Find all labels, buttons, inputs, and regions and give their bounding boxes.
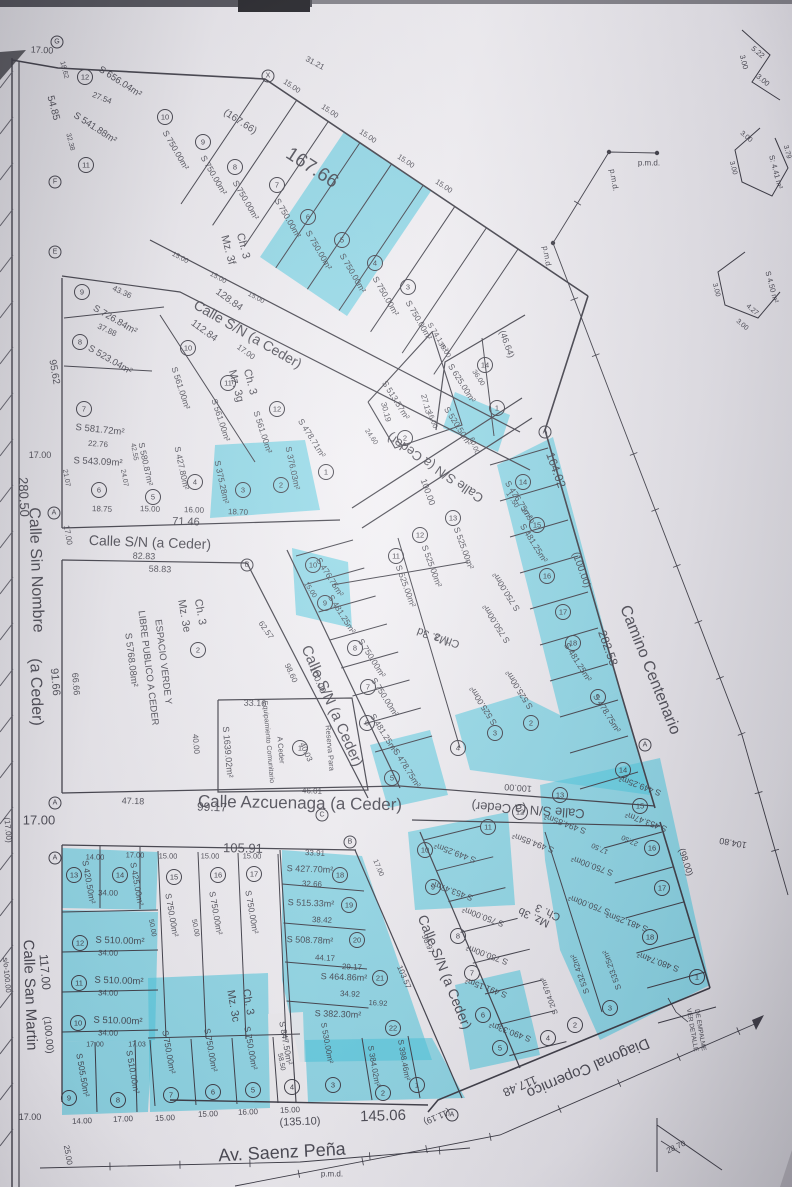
lot-number: 14 — [519, 478, 527, 487]
dim: 17.00 — [30, 44, 53, 55]
dim: 24.07 — [119, 469, 129, 488]
lot-area: S 508.78m² — [287, 934, 334, 946]
scanned-cadastral-plan: 1211109876543981011127654321214113121110… — [0, 0, 792, 1187]
dim: 14.00 — [86, 852, 105, 861]
lot-number: 7 — [275, 181, 279, 190]
street-name: Calle S/N (a Ceder) — [415, 912, 476, 1031]
dim: 18.70 — [228, 507, 249, 517]
dim: 14.00 — [72, 1116, 93, 1126]
lot-number: 5 — [390, 774, 394, 783]
lot-number: 15 — [170, 873, 178, 882]
survey-tick — [574, 201, 581, 205]
vertex-letter: G — [54, 39, 59, 46]
lot-area: S 523.04m² — [86, 343, 134, 377]
dim: 58.83 — [149, 564, 172, 575]
lot-area: S 510.00m² — [94, 975, 143, 988]
survey-tick — [369, 1152, 370, 1160]
lot-area: S 580.87m² — [137, 441, 156, 486]
dim: 34.00 — [98, 1028, 119, 1037]
detail-area: S: 4.41 m² — [767, 154, 785, 190]
margin-hatching — [0, 899, 13, 916]
reserve-area: S 1639.02m² — [221, 726, 235, 778]
lot-number: 5 — [151, 493, 155, 502]
lot-number: 3 — [331, 1081, 335, 1090]
lot-number: 12 — [76, 939, 84, 948]
vertex-letter: E — [53, 249, 58, 256]
dim: 17.00 — [23, 813, 56, 828]
lot-number: 10 — [74, 1019, 82, 1028]
dim: 104.80 — [719, 836, 748, 851]
mz3d-west-dividers — [296, 540, 353, 556]
dim: 32.38 — [64, 133, 75, 152]
dim: 15.00 — [247, 291, 266, 305]
margin-hatching — [0, 117, 13, 134]
cadastral-plan-svg: 1211109876543981011127654321214113121110… — [0, 0, 792, 1187]
lot-number: 5 — [251, 1086, 255, 1095]
lot-number: 18 — [336, 871, 344, 880]
lot-number: 4 — [373, 259, 377, 268]
dim: 15.00 — [396, 152, 417, 170]
lot-area: S 750.00m² — [231, 178, 262, 221]
detail-dim: 5.22 — [750, 44, 767, 60]
dim: 34.92 — [340, 989, 361, 999]
lot-number: 5 — [498, 1044, 502, 1053]
lot-number: 5 — [340, 236, 344, 245]
dim: 47.18 — [122, 796, 145, 807]
lot-number: 20 — [353, 936, 361, 945]
lot-area: S 750.00m² — [199, 153, 230, 196]
dim: (17.00) — [2, 817, 13, 843]
detail-dim: 3.00 — [738, 54, 750, 70]
lot-area: S 464.86m² — [321, 971, 368, 983]
dim: 15.00 — [434, 177, 455, 195]
lot-number: 16 — [648, 844, 656, 853]
vertex-letter: F — [53, 179, 57, 186]
block-label: Mz. 3d — [415, 625, 450, 648]
green-space-area: S 5768.08m² — [122, 632, 140, 687]
dim: 15.00 — [201, 851, 220, 860]
dim: 17.00 — [126, 850, 145, 859]
vertex-letter: A — [543, 429, 548, 436]
lot-number: 19 — [345, 901, 353, 910]
dim: (135.10) — [279, 1115, 320, 1128]
dim: 16.00 — [238, 1107, 259, 1117]
lot-area: S 382.30m² — [315, 1008, 362, 1020]
margin-hatching — [0, 1129, 13, 1146]
street-name: Calle Azcuenaga (a Ceder) — [198, 792, 402, 815]
photo-top-blob — [238, 0, 310, 12]
block-label: Mz. 3e — [175, 599, 193, 634]
lot-number: 3 — [608, 1004, 612, 1013]
survey-tick — [439, 1147, 440, 1155]
dim: 33.16 — [244, 698, 267, 709]
lot-number: 12 — [416, 531, 424, 540]
reserve-label: Equipamiento Comunitario — [261, 701, 275, 784]
lot-number: 2 — [573, 1021, 577, 1030]
dim: 15.00 — [243, 851, 262, 860]
lot-area: S 427.70m² — [287, 863, 334, 875]
lot-number: 8 — [78, 338, 82, 347]
lot-number: 17 — [559, 608, 567, 617]
dim: 16.00 — [184, 505, 205, 515]
lot-area: S 750.00m² — [371, 274, 402, 317]
street-name: Calle Sin Nombre — [25, 507, 46, 633]
lot-number: 7 — [366, 683, 370, 692]
margin-hatching — [0, 1083, 13, 1100]
dim: 98.60 — [283, 662, 300, 684]
lot-number: 1 — [415, 1081, 419, 1090]
dim: 15.00 — [159, 851, 178, 860]
street-name: Av. Saenz Peña — [218, 1139, 347, 1166]
street-name: (a Ceder) — [26, 658, 45, 726]
lot-area: S 510.00m² — [93, 1015, 142, 1028]
lot-number: 14 — [481, 361, 489, 370]
pmd-dot — [655, 151, 659, 155]
dim: 82.83 — [133, 551, 156, 562]
lot-number: 2 — [279, 481, 283, 490]
dim: 33.91 — [305, 848, 326, 858]
dim: s/o-100.00 — [1, 957, 13, 993]
lot-number: 2 — [196, 646, 200, 655]
pmd-dot — [607, 150, 611, 154]
margin-hatching — [0, 761, 13, 778]
dim: (46.64) — [497, 329, 516, 359]
dim: 17.00 — [371, 859, 384, 878]
detail-dim: 3.00 — [711, 283, 721, 298]
lot-number: 11 — [82, 161, 90, 170]
dim: 24.60 — [363, 428, 379, 446]
lot-number: 17 — [250, 870, 258, 879]
margin-hatching — [0, 163, 13, 180]
lot-number: 14 — [116, 871, 124, 880]
margin-hatching — [0, 531, 13, 548]
lot-area: S 561.00m² — [169, 366, 192, 411]
dim: 15.00 — [140, 504, 161, 514]
lot-area: S 750.00m² — [369, 676, 401, 719]
vertex-letter: A — [53, 800, 58, 807]
photo-corner-br — [780, 1150, 792, 1187]
dim: 34.00 — [98, 948, 119, 957]
lot-number: 22 — [389, 1024, 397, 1033]
dim: 18.75 — [92, 504, 113, 514]
dim: 71.46 — [172, 516, 200, 529]
dim: 15.00 — [280, 1105, 301, 1115]
dim: (100.00) — [41, 1016, 55, 1054]
lot-number: 7 — [82, 405, 86, 414]
dim: 100.00 — [504, 782, 532, 794]
vertex-letter: A — [52, 510, 57, 517]
lot-number: 9 — [323, 599, 327, 608]
lot-area: S 750.00m² — [460, 905, 505, 929]
dim: 17.03 — [128, 1042, 146, 1049]
margin-hatching — [0, 347, 13, 364]
lot-number: 14 — [619, 766, 627, 775]
street540-north — [62, 520, 340, 528]
lot-number: 13 — [70, 871, 78, 880]
lot-number: 15 — [636, 802, 644, 811]
dim: 66.66 — [70, 672, 82, 695]
lot-number: 3 — [493, 729, 497, 738]
dim: 91.66 — [48, 668, 62, 696]
lot-number: 13 — [449, 514, 457, 523]
lot-number: 6 — [211, 1088, 215, 1097]
vertex-letter: X — [266, 73, 271, 80]
block-label: Ch. 3 — [192, 598, 208, 626]
lot-number: 8 — [116, 1096, 120, 1105]
dim: 15.00 — [171, 251, 190, 265]
lot-area: S 204.97m² — [538, 976, 560, 1016]
dim: 29.17 — [342, 962, 363, 972]
pmd-dot — [551, 241, 555, 245]
dim: 145.06 — [360, 1107, 406, 1126]
lot-number: 12 — [81, 73, 89, 82]
vertex-letter: A — [643, 742, 648, 749]
lot-area: S 510.00m² — [95, 935, 144, 948]
lot-number: 9 — [201, 138, 205, 147]
lot-area: S 750.00m² — [207, 890, 225, 935]
dim: 17.00 — [29, 450, 52, 460]
dim: 27.54 — [91, 90, 113, 106]
lot-number: 11 — [392, 552, 400, 561]
lot-number: 11 — [484, 823, 492, 832]
margin-hatching — [0, 485, 13, 502]
dim: 99.17 — [197, 799, 228, 814]
pmd-label: p.m.d. — [638, 159, 660, 168]
vertex-letter: B — [348, 839, 353, 846]
margin-hatching — [0, 439, 13, 456]
vertex-letter: A — [53, 855, 58, 862]
margin-hatching — [0, 301, 13, 318]
lot-number: 6 — [97, 486, 101, 495]
lot-area: S 750.00m² — [404, 298, 435, 341]
dim: 31.21 — [304, 54, 326, 72]
lot-area: S 427.80m² — [173, 445, 192, 490]
dim: 16.00 — [426, 411, 439, 430]
dim: 34.00 — [98, 988, 119, 997]
dim: 34.00 — [98, 888, 119, 897]
lot-number: 16 — [214, 871, 222, 880]
lot-area: S 750.00m² — [161, 128, 192, 171]
lot-number: 1 — [695, 973, 699, 982]
lot-number: 3 — [406, 283, 410, 292]
dim: 280.50 — [16, 477, 32, 517]
dim: (11.19) — [422, 1107, 452, 1127]
lot-area: S 543.09m² — [73, 455, 123, 469]
dim: 18.62 — [58, 61, 69, 80]
dim: 62.57 — [257, 619, 276, 641]
lot-number: 4 — [290, 1083, 294, 1092]
lot-number: 3 — [241, 486, 245, 495]
lot-area: S 750.00m² — [163, 892, 181, 937]
lot-area: S 750.00m² — [243, 889, 261, 934]
margin-hatching — [0, 669, 13, 686]
copernico-arrowhead — [752, 1015, 764, 1030]
lot-number: 21 — [376, 974, 384, 983]
lot-area: S 750.00m² — [490, 571, 522, 614]
dim: 22.76 — [88, 439, 109, 449]
dim: 25.00 — [62, 1144, 74, 1166]
lot-number: 12 — [273, 405, 281, 414]
photo-top-edge-right — [312, 0, 792, 4]
lot-number: 10 — [421, 846, 429, 855]
dim: 44.17 — [315, 953, 336, 963]
lot-area: S 525.00m² — [420, 544, 444, 589]
lot-number: 2 — [529, 719, 533, 728]
detail-area: S 4.50 m² — [763, 270, 780, 304]
lot-number: 4 — [546, 1034, 550, 1043]
dim: 38.42 — [312, 915, 333, 925]
lot-area: S 581.72m² — [75, 422, 125, 438]
lot-number: 8 — [233, 163, 237, 172]
dim: 15.00 — [198, 1109, 219, 1119]
dim: 54.85 — [44, 94, 61, 121]
detail-dim: 3.00 — [728, 161, 738, 176]
lot-number: 6 — [365, 719, 369, 728]
dim: 15.00 — [209, 271, 228, 285]
reserve-label: A Ceder — [275, 736, 286, 764]
street-name: Calle S/N (a Ceder) — [89, 532, 212, 552]
lot-number: 7 — [169, 1091, 173, 1100]
dim: 28.70 — [665, 1138, 687, 1155]
dim: 36.00 — [470, 369, 485, 388]
lot-number: 16 — [543, 572, 551, 581]
dim: 15.00 — [155, 1113, 176, 1123]
lot-area: S 750.00m² — [480, 603, 512, 646]
dim: 17.00 — [86, 1042, 104, 1049]
lot-number: 6 — [481, 1011, 485, 1020]
margin-hatching — [0, 1037, 13, 1054]
lot-number: 7 — [470, 969, 474, 978]
margin-hatching — [0, 393, 13, 410]
pmd-label: p.m.d. — [321, 1170, 343, 1179]
dim: 30.19 — [379, 401, 393, 423]
dim: 15.00 — [358, 127, 379, 145]
lot-number: 8 — [353, 644, 357, 653]
dim: (167.66) — [221, 107, 258, 137]
margin-hatching — [0, 623, 13, 640]
lot-number: 2 — [381, 1089, 385, 1098]
mz3d-west-dividers — [330, 624, 387, 640]
detail-dim: 3.00 — [735, 318, 750, 332]
lot-number: 17 — [658, 884, 666, 893]
dim: 32.66 — [302, 879, 323, 889]
lot-number: 13 — [556, 791, 564, 800]
lot-number: 11 — [75, 979, 83, 988]
lot-number: 4 — [456, 744, 460, 753]
dim: 46.01 — [302, 786, 323, 796]
margin-hatching — [0, 853, 13, 870]
lot-number: 10 — [161, 113, 169, 122]
lot-area: S 525.00m² — [394, 564, 418, 609]
margin-hatching — [0, 577, 13, 594]
dim: 43.36 — [111, 284, 133, 301]
detail-dim: 4.27 — [745, 303, 760, 317]
lot-number: 1 — [495, 404, 499, 413]
lot-number: 4 — [193, 478, 197, 487]
lot-number: 10 — [184, 344, 192, 353]
lot-number: 6 — [306, 213, 310, 222]
lot-area: S 561.00m² — [209, 398, 232, 443]
lot-area: S 750.00m² — [356, 637, 388, 680]
dim: 40.00 — [191, 734, 202, 755]
detail-dim: 3.00 — [739, 130, 754, 144]
vertex-letter: B — [245, 562, 250, 569]
margin-hatching — [0, 209, 13, 226]
margin-hatching — [0, 991, 13, 1008]
dim: 95.62 — [46, 359, 61, 386]
dim: 16.92 — [368, 998, 387, 1008]
photo-corner-sliver — [0, 50, 26, 80]
lot-area: S 541.88m² — [71, 110, 118, 146]
dim: 17.00 — [113, 1114, 134, 1124]
margin-hatching — [0, 715, 13, 732]
street-name: Diagonal Copernico — [524, 1034, 652, 1101]
lot-number: 1 — [324, 468, 328, 477]
lot-area: S 515.33m² — [288, 897, 335, 909]
lot-number: 8 — [456, 932, 460, 941]
pmd-label: p.m.d. — [608, 168, 621, 191]
mz3g-div2 — [64, 366, 152, 371]
margin-hatching — [0, 255, 13, 272]
lot-area: S 750.00m² — [464, 943, 509, 967]
lot-number: 9 — [80, 288, 84, 297]
lot-number: 9 — [67, 1094, 71, 1103]
dim: 17.00 — [19, 1112, 42, 1122]
dim: 35.00 — [436, 341, 451, 360]
dim: 50.00 — [190, 919, 200, 938]
